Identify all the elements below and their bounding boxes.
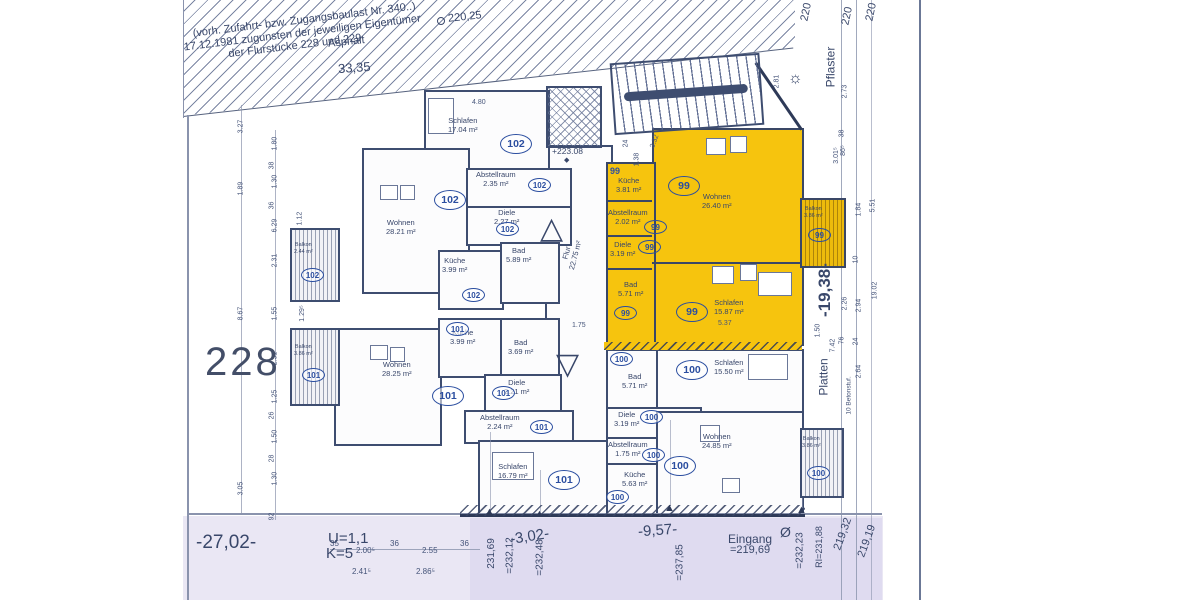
dim-label: 5.51 [869, 199, 876, 213]
wall-99-c [606, 268, 652, 270]
furniture [706, 138, 726, 155]
room-label: Abstellraum [476, 170, 516, 179]
room-label: Schlafen [498, 462, 528, 471]
room-area: 15.87 m² [714, 307, 744, 316]
room-area: 5.89 m² [506, 255, 531, 264]
unit-badge-102: 102 [462, 288, 485, 302]
unit-badge-101: 101 [446, 322, 469, 336]
dim-label: 1.89 [237, 182, 244, 196]
boundary-line-left [187, 115, 189, 600]
dim-27-02: -27,02- [196, 532, 256, 554]
room-area: 3.19 m² [610, 249, 635, 258]
dim-9-57: -9,57- [637, 521, 677, 541]
dim-1-75: 1.75 [572, 322, 586, 329]
unit-badge-102: 102 [301, 268, 324, 282]
dim-label: 2.94 [855, 299, 862, 313]
dim-19-38: -19,38- [815, 263, 835, 317]
level-232-48: =232,48 [535, 539, 546, 575]
room-label: Küche [622, 470, 647, 479]
level-220-a: 220 [798, 2, 814, 22]
room-label: Wohnen [382, 360, 412, 369]
room-area: 2.44 m² [294, 249, 313, 256]
unit-badge-99: 99 [668, 176, 700, 196]
stair-arrow-down-icon: ▽ [556, 350, 579, 380]
page-edge-line [919, 0, 921, 600]
level-220-b: 220 [839, 6, 855, 26]
unit-badge-100: 100 [676, 360, 708, 380]
unit-badge-99: 99 [644, 220, 667, 234]
survey-marker-icon: ▲ [796, 504, 807, 516]
survey-marker-icon: ▲ [484, 506, 495, 518]
dim-label: 1.55 [271, 307, 278, 321]
dim-4-80: 4.80 [472, 99, 486, 106]
room-area: 24.85 m² [702, 441, 732, 450]
dim-label: 36 [460, 539, 469, 548]
unit-badge-99: 99 [638, 240, 661, 254]
room-area: 28.21 m² [386, 227, 416, 236]
level-231-69: 231,69 [486, 538, 497, 569]
room-area: 26.40 m² [702, 201, 732, 210]
dim-label: 38 [268, 162, 275, 170]
dim-label: 3.01⁵ [833, 147, 840, 164]
furniture-bed [758, 272, 792, 296]
room-area: 15.50 m² [714, 367, 744, 376]
dim-label: 86⁵ [840, 145, 847, 156]
unit-badge-99: 99 [808, 228, 831, 242]
unit-badge-100: 100 [642, 448, 665, 462]
room-label: Diele [494, 208, 519, 217]
pflaster-label: Pflaster [823, 47, 837, 88]
dim-label: 38 [838, 130, 845, 138]
dim-label: 2.00⁵ [356, 546, 375, 555]
unit-badge-100: 100 [610, 352, 633, 366]
dim-label: 76 [838, 337, 845, 345]
unit-badge-100: 100 [606, 490, 629, 504]
furniture [380, 185, 398, 200]
room-area: 16.79 m² [498, 471, 528, 480]
room-area: 3.99 m² [450, 337, 475, 346]
dim-label: 1.30 [271, 175, 278, 189]
platten-label: Platten [817, 358, 831, 395]
dim-label: 1.80 [271, 137, 278, 151]
unit-badge-102: 102 [434, 190, 466, 210]
unit-badge-102: 102 [500, 134, 532, 154]
room-label: Küche [616, 176, 641, 185]
parcel-number: 228 [205, 340, 281, 385]
room-label: Bad [622, 372, 647, 381]
room-wohnen-101 [334, 328, 442, 446]
dim-label: 1.50 [271, 430, 278, 444]
level-232-23: =232,23 [795, 532, 806, 568]
sun-symbol-icon: ☼ [788, 70, 803, 88]
dim-label: 26 [268, 412, 275, 420]
furniture [722, 478, 740, 493]
dim-5-37: 5.37 [718, 320, 732, 327]
room-area: 3.19 m² [614, 419, 639, 428]
eingang-level: =219,69 [730, 544, 770, 556]
room-label: Diele [614, 410, 639, 419]
staircase-exterior [610, 53, 765, 135]
room-label: Wohnen [702, 432, 732, 441]
room-label: Balkon [804, 206, 823, 213]
unit-badge-102: 102 [528, 178, 551, 192]
room-label: Balkon [294, 344, 313, 351]
stair-handrail [624, 84, 748, 102]
dim-33-35: 33,35 [338, 59, 372, 76]
furniture [370, 345, 388, 360]
balkon-101 [290, 328, 340, 406]
room-area: 3.99 m² [442, 265, 467, 274]
unit-badge-100: 100 [807, 466, 830, 480]
room-label: Diele [610, 240, 635, 249]
unit-badge-101: 101 [492, 386, 515, 400]
room-area: 5.71 m² [618, 289, 643, 298]
dim-label: 10 Betonstuf. [846, 376, 853, 414]
unit-badge-99: 99 [676, 302, 708, 322]
unit-badge-99: 99 [614, 306, 637, 320]
survey-circle-icon: Ø [780, 524, 791, 540]
furniture-bed [748, 354, 788, 380]
dim-label: 1.12 [296, 212, 303, 226]
elevator-shaft [546, 86, 602, 148]
dim-label: 1.25 [271, 390, 278, 404]
dim-label: 1.30 [271, 472, 278, 486]
room-area: 3.81 m² [616, 185, 641, 194]
level-232-12: =232,12 [505, 537, 516, 573]
wall-99-b [606, 235, 652, 237]
furniture [740, 264, 757, 281]
unit-badge-101: 101 [530, 420, 553, 434]
dim-label: 2.73 [841, 85, 848, 99]
room-label: Wohnen [386, 218, 416, 227]
balkon-102 [290, 228, 340, 302]
dim-label: 36 [390, 539, 399, 548]
furniture [730, 136, 747, 153]
room-area: 5.63 m² [622, 479, 647, 488]
marker-stem [490, 432, 491, 512]
dim-label: 2.31 [271, 254, 278, 268]
boundary-line-left-top [183, 0, 184, 118]
room-label: Abstellraum [608, 440, 648, 449]
apartment-99-bottom-wall [604, 342, 802, 350]
k-value: K=5 [326, 545, 353, 562]
dim-label: 6.29 [271, 219, 278, 233]
unit-badge-100: 100 [640, 410, 663, 424]
dim-label: 19.02 [871, 282, 878, 300]
unit-badge-99: 99 [610, 166, 620, 176]
dim-label: 2.55 [422, 546, 438, 555]
dim-label: 2.41⁵ [352, 567, 371, 576]
dim-label: 2.64 [855, 365, 862, 379]
room-area: 3.69 m² [508, 347, 533, 356]
level-marker-icon: ◆ [564, 156, 569, 164]
dim-label: 2.26 [841, 297, 848, 311]
room-label: Abstellraum [480, 413, 520, 422]
dim-label: 36 [268, 202, 275, 210]
room-label: Schlafen [448, 116, 478, 125]
unit-badge-102: 102 [496, 222, 519, 236]
room-label: Küche [442, 256, 467, 265]
room-label: Balkon [802, 436, 821, 443]
dim-label: 1.50 [814, 324, 821, 338]
dim-label: 3.05 [237, 482, 244, 496]
dim-label: 1.29⁵ [299, 305, 306, 322]
dim-label: 3.27 [237, 120, 244, 134]
unit-badge-101: 101 [548, 470, 580, 490]
dim-label: 1.84 [855, 203, 862, 217]
room-area: 2.24 m² [480, 422, 520, 431]
dim-label: 92 [268, 513, 275, 521]
room-area: 2.02 m² [608, 217, 648, 226]
room-area: 3.86 m² [294, 351, 313, 358]
unit-badge-101: 101 [302, 368, 325, 382]
room-area: 3.86 m² [802, 443, 821, 450]
room-label: Bad [618, 280, 643, 289]
level-220-c: 220 [863, 2, 879, 22]
room-area: 28.25 m² [382, 369, 412, 378]
survey-marker-icon: ▲ [534, 508, 545, 520]
room-label: Schlafen [714, 298, 744, 307]
dim-1-38: 1.38 [633, 153, 640, 167]
level-237-85: =237,85 [675, 544, 686, 580]
room-label: Bad [508, 338, 533, 347]
dim-label: 8.67 [237, 307, 244, 321]
dim-label: 28 [268, 455, 275, 463]
room-area: 3.86 m² [804, 213, 823, 220]
level-ri-231-88: RI=231,88 [814, 526, 824, 568]
level-223-08: +223.08 [552, 146, 583, 156]
dim-label: 2.86⁵ [416, 567, 435, 576]
wall-99-d [652, 262, 800, 264]
dim-label: 7.42 [829, 339, 836, 353]
dim-label: 24 [852, 338, 859, 346]
bottom-wall-hatch [460, 505, 805, 516]
dim-24: 24 [622, 140, 629, 148]
furniture [712, 266, 734, 284]
room-label: Wohnen [702, 192, 732, 201]
stair-arrow-up-icon: △ [540, 214, 563, 244]
dim-2-81: 2.81 [773, 75, 780, 89]
room-area: 17.04 m² [448, 125, 478, 134]
room-label: Schlafen [714, 358, 744, 367]
room-label: Balkon [294, 242, 313, 249]
wall-99-a [606, 200, 652, 202]
room-area: 5.71 m² [622, 381, 647, 390]
survey-marker-icon: ▲ [664, 502, 675, 514]
room-label: Abstellraum [608, 208, 648, 217]
grid-line-right-3 [871, 0, 872, 600]
furniture [400, 185, 415, 200]
unit-badge-100: 100 [664, 456, 696, 476]
room-label: Bad [506, 246, 531, 255]
room-area: 2.35 m² [476, 179, 516, 188]
dim-label: 10 [852, 256, 859, 264]
unit-badge-101: 101 [432, 386, 464, 406]
survey-point-icon [437, 17, 445, 25]
